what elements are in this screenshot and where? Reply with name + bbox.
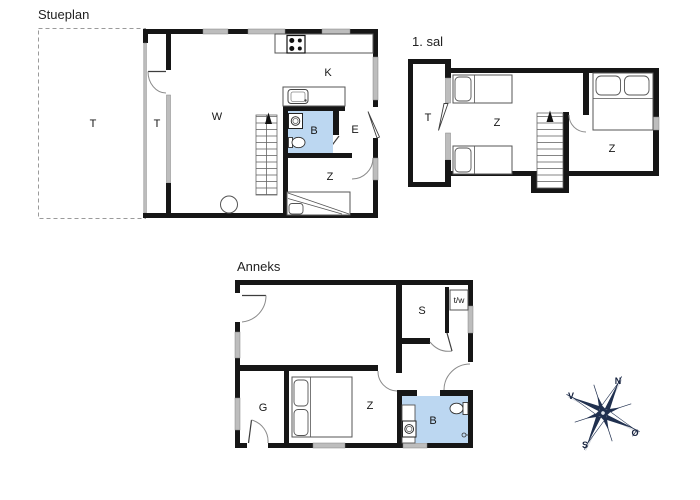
sink-icon <box>288 90 308 104</box>
door-arc <box>148 72 166 94</box>
room-label-bedroom-left: Z <box>494 117 501 129</box>
compass-label-north: N <box>615 376 622 386</box>
pillow-icon <box>294 380 308 406</box>
compass-label-east: Ø <box>631 428 638 438</box>
window-icon <box>373 158 378 180</box>
anneks-title: Anneks <box>237 259 281 274</box>
room-label-hall: G <box>259 402 268 414</box>
window-icon <box>203 29 228 34</box>
door-arc <box>378 371 397 391</box>
floorplan-page: Stueplan <box>0 0 700 500</box>
stueplan-title: Stueplan <box>38 7 89 22</box>
pillow-icon <box>455 77 471 101</box>
pillow-icon <box>596 76 621 95</box>
door-leaf <box>249 420 252 443</box>
glass-wall <box>144 43 147 213</box>
pillow-icon <box>294 410 308 436</box>
room-label-bedroom: Z <box>367 400 374 412</box>
first-floor-title: 1. sal <box>412 34 443 49</box>
door-arc <box>444 364 470 390</box>
room-label-storage: S <box>418 305 425 317</box>
pillow-icon <box>625 76 650 95</box>
bed-icon <box>453 75 512 103</box>
window-icon <box>313 443 345 448</box>
bed-icon <box>287 192 350 215</box>
bed-icon <box>453 146 512 174</box>
window-icon <box>373 57 378 100</box>
window-icon <box>322 29 350 34</box>
double-bed-icon <box>292 377 352 437</box>
pillow-icon <box>289 204 303 215</box>
window-icon <box>248 29 285 34</box>
washing-machine-icon <box>289 114 303 129</box>
table-icon <box>221 196 238 213</box>
room-label-terrace: T <box>90 118 97 130</box>
door-leaf <box>439 104 449 131</box>
room-label-entry: E <box>351 124 358 136</box>
anneks-plan: Anneks <box>235 259 473 448</box>
room-label-living: W <box>212 111 223 123</box>
double-bed-icon <box>593 73 653 130</box>
stairs-icon <box>537 111 563 189</box>
pillow-icon <box>455 148 471 172</box>
compass-rose: N V S Ø <box>548 358 659 469</box>
door-opening <box>247 443 268 448</box>
window-icon <box>167 95 171 183</box>
door-arc <box>252 420 269 443</box>
first-floor-plan: 1. sal <box>408 34 659 193</box>
door-leaf <box>447 333 452 351</box>
floor-plan-canvas: Stueplan <box>0 0 700 500</box>
window-icon <box>468 306 473 333</box>
room-label-bath: B <box>310 125 317 137</box>
room-label-bedroom-right: Z <box>609 143 616 155</box>
stairs-icon <box>256 113 277 196</box>
room-label-tw: t/w <box>454 295 466 305</box>
window-icon <box>235 398 240 430</box>
door-arc <box>569 115 586 132</box>
washing-machine-icon <box>403 421 417 437</box>
stove-icon <box>287 36 305 54</box>
room-label-terrace: T <box>425 112 432 124</box>
door-opening <box>235 293 240 322</box>
door-arc <box>352 158 373 179</box>
door-opening <box>468 362 473 390</box>
room-label-hall: T <box>154 118 161 130</box>
toilet-icon <box>450 403 468 415</box>
room-label-kitchen: K <box>324 67 332 79</box>
window-icon <box>403 443 427 448</box>
stueplan-plan: Stueplan <box>38 7 380 219</box>
toilet-icon <box>289 137 306 147</box>
compass-label-south: S <box>582 440 588 450</box>
room-label-bath: B <box>429 415 436 427</box>
door-arc <box>430 342 452 351</box>
compass-label-west: V <box>568 391 574 401</box>
door-arc <box>242 296 266 323</box>
window-icon <box>653 117 659 130</box>
room-label-bedroom: Z <box>327 171 334 183</box>
window-icon <box>446 133 451 160</box>
window-icon <box>446 78 451 103</box>
window-icon <box>235 332 240 358</box>
